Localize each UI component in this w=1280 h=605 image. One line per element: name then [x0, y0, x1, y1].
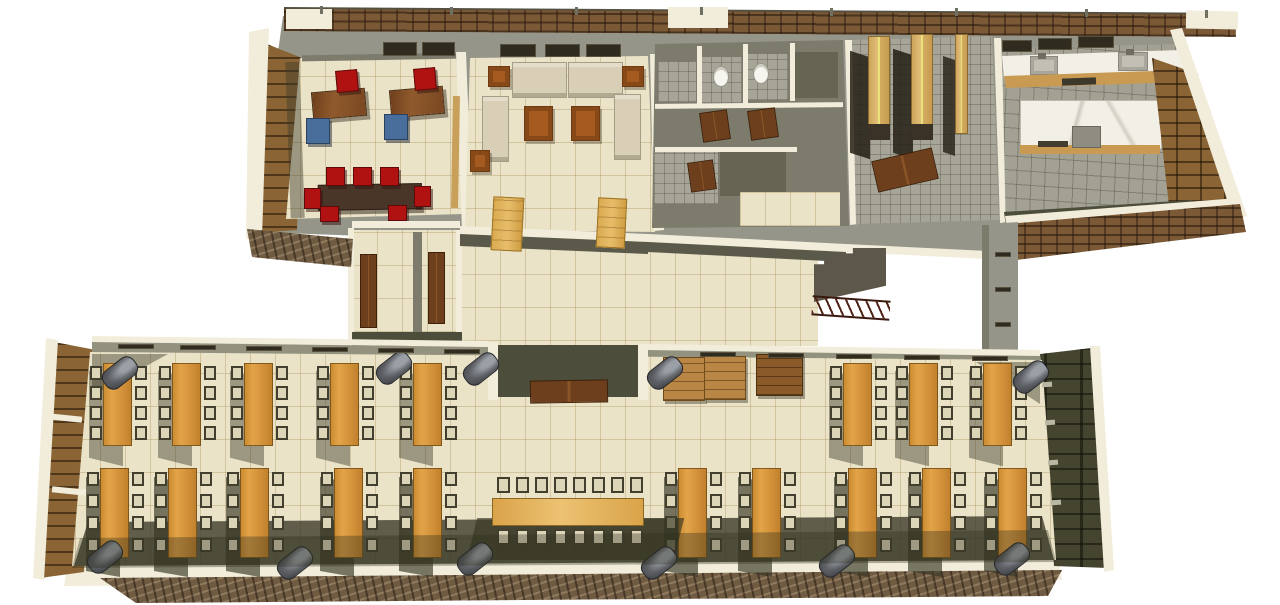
- floorplan-render: [0, 0, 1280, 605]
- dining-chair: [880, 516, 892, 530]
- dining-chair: [159, 366, 171, 380]
- dining-chair: [400, 386, 412, 400]
- dining-chair: [445, 366, 457, 380]
- dining-chair: [204, 366, 216, 380]
- dining-chair: [159, 406, 171, 420]
- dining-table: [983, 363, 1012, 446]
- dining-chair: [272, 494, 284, 508]
- dining-chair: [159, 426, 171, 440]
- dining-chair: [276, 426, 288, 440]
- dining-chair: [135, 406, 147, 420]
- dining-chair: [366, 472, 378, 486]
- dining-chair: [276, 406, 288, 420]
- dining-chair: [896, 366, 908, 380]
- dining-chair: [835, 472, 847, 486]
- dining-chair: [970, 386, 982, 400]
- dining-chair: [321, 494, 333, 508]
- clerestory-slit: [444, 349, 480, 354]
- dining-chair: [954, 494, 966, 508]
- banquet-chair: [611, 477, 624, 493]
- dining-chair: [317, 386, 329, 400]
- dining-chair: [739, 472, 751, 486]
- dining-chair: [830, 386, 842, 400]
- dining-chair: [875, 366, 887, 380]
- dining-chair: [710, 472, 722, 486]
- dining-chair: [204, 426, 216, 440]
- roof-post: [320, 6, 323, 14]
- banquet-chair: [535, 477, 548, 493]
- dining-chair: [200, 516, 212, 530]
- dining-table: [244, 363, 273, 446]
- dining-chair: [830, 426, 842, 440]
- roof-post: [955, 8, 958, 16]
- dining-chair: [739, 516, 751, 530]
- roof-post: [830, 8, 833, 16]
- dining-chair: [321, 472, 333, 486]
- dining-chair: [445, 472, 457, 486]
- dining-table: [330, 363, 359, 446]
- dining-chair: [90, 406, 102, 420]
- dining-chair: [362, 406, 374, 420]
- dining-chair: [90, 386, 102, 400]
- banquet-chair: [554, 477, 567, 493]
- dining-chair: [941, 406, 953, 420]
- dining-chair: [317, 406, 329, 420]
- banquet-chair: [573, 477, 586, 493]
- dining-chair: [231, 386, 243, 400]
- dining-chair: [784, 472, 796, 486]
- banquet-chair: [630, 477, 643, 493]
- dining-chair: [317, 426, 329, 440]
- dining-chair: [400, 426, 412, 440]
- roof-post: [1205, 10, 1208, 18]
- dining-chair: [784, 494, 796, 508]
- dining-chair: [830, 406, 842, 420]
- dining-chair: [231, 406, 243, 420]
- dining-chair: [835, 494, 847, 508]
- roof-post: [575, 7, 578, 15]
- dining-table: [909, 363, 938, 446]
- clerestory-slit: [768, 353, 804, 358]
- dining-chair: [135, 386, 147, 400]
- dining-chair: [231, 426, 243, 440]
- dining-chair: [445, 516, 457, 530]
- dining-chair: [875, 406, 887, 420]
- dining-chair: [132, 516, 144, 530]
- dining-chair: [276, 366, 288, 380]
- dining-chair: [272, 516, 284, 530]
- clerestory-slit: [904, 355, 940, 360]
- dining-chair: [665, 472, 677, 486]
- roof-post: [450, 7, 453, 15]
- wall-tab: [1042, 382, 1052, 388]
- dining-chair: [400, 406, 412, 420]
- dining-chair: [985, 472, 997, 486]
- louver-cap: [48, 413, 82, 423]
- dining-chair: [445, 494, 457, 508]
- dining-table: [843, 363, 872, 446]
- dining-chair: [835, 516, 847, 530]
- dining-chair: [366, 516, 378, 530]
- dining-chair: [204, 386, 216, 400]
- dining-chair: [227, 516, 239, 530]
- dining-chair: [1030, 516, 1042, 530]
- dining-chair: [445, 386, 457, 400]
- dining-chair: [896, 426, 908, 440]
- dining-chair: [155, 494, 167, 508]
- dining-chair: [710, 516, 722, 530]
- dining-chair: [227, 472, 239, 486]
- roof-post: [700, 7, 703, 15]
- banquet-table: [492, 498, 644, 526]
- dining-chair: [875, 426, 887, 440]
- dining-chair: [155, 472, 167, 486]
- dining-chair: [321, 516, 333, 530]
- dining-chair: [830, 366, 842, 380]
- dining-chair: [362, 426, 374, 440]
- dining-chair: [954, 472, 966, 486]
- dining-table: [413, 363, 442, 446]
- dining-chair: [739, 494, 751, 508]
- dining-chair: [135, 426, 147, 440]
- dining-chair: [155, 516, 167, 530]
- banquet-chair: [592, 477, 605, 493]
- dining-chair: [970, 406, 982, 420]
- banquet-chair: [516, 477, 529, 493]
- dining-chair: [445, 426, 457, 440]
- dining-chair: [954, 516, 966, 530]
- roof-post: [1085, 9, 1088, 17]
- dining-chair: [400, 516, 412, 530]
- dining-chair: [970, 426, 982, 440]
- dining-chair: [204, 406, 216, 420]
- dining-chair: [159, 386, 171, 400]
- trash-bin: [643, 353, 686, 394]
- dining-chair: [1030, 472, 1042, 486]
- dining-chair: [784, 516, 796, 530]
- dining-chair: [400, 472, 412, 486]
- wall-tab: [1048, 460, 1058, 466]
- dining-chair: [132, 494, 144, 508]
- clerestory-slit: [836, 354, 872, 359]
- clerestory-slit: [312, 347, 348, 352]
- dining-chair: [1015, 426, 1027, 440]
- dining-chair: [366, 494, 378, 508]
- dining-chair: [272, 472, 284, 486]
- dining-chair: [710, 494, 722, 508]
- dining-chair: [87, 472, 99, 486]
- dining-chair: [87, 516, 99, 530]
- dining-chair: [90, 426, 102, 440]
- dining-chair: [985, 494, 997, 508]
- trash-bin: [459, 349, 502, 390]
- dining-chair: [362, 366, 374, 380]
- louver-cap: [52, 486, 86, 496]
- dining-chair: [941, 366, 953, 380]
- dining-chair: [985, 516, 997, 530]
- clerestory-slit: [378, 348, 414, 353]
- dining-chair: [941, 386, 953, 400]
- dining-chair: [227, 494, 239, 508]
- clerestory-slit: [700, 352, 736, 357]
- dining-chair: [87, 494, 99, 508]
- dining-chair: [362, 386, 374, 400]
- dining-furniture-layer: [0, 0, 1280, 605]
- clerestory-slit: [118, 344, 154, 349]
- clerestory-slit: [972, 356, 1008, 361]
- dining-chair: [200, 472, 212, 486]
- dining-chair: [132, 472, 144, 486]
- dining-chair: [445, 406, 457, 420]
- dining-chair: [200, 494, 212, 508]
- dining-chair: [665, 494, 677, 508]
- dining-chair: [231, 366, 243, 380]
- wall-tab: [1051, 500, 1061, 506]
- clerestory-slit: [246, 346, 282, 351]
- dining-chair: [896, 406, 908, 420]
- dining-chair: [1030, 494, 1042, 508]
- dining-chair: [90, 366, 102, 380]
- dining-table: [172, 363, 201, 446]
- dining-chair: [909, 516, 921, 530]
- dining-chair: [880, 494, 892, 508]
- dining-chair: [875, 386, 887, 400]
- dining-chair: [880, 472, 892, 486]
- clerestory-slit: [180, 345, 216, 350]
- wall-tab: [1045, 420, 1055, 426]
- dining-chair: [400, 494, 412, 508]
- dining-chair: [941, 426, 953, 440]
- dining-chair: [317, 366, 329, 380]
- dining-chair: [909, 494, 921, 508]
- banquet-chair: [497, 477, 510, 493]
- dining-chair: [276, 386, 288, 400]
- dining-chair: [896, 386, 908, 400]
- dining-chair: [909, 472, 921, 486]
- dining-chair: [970, 366, 982, 380]
- dining-chair: [1015, 406, 1027, 420]
